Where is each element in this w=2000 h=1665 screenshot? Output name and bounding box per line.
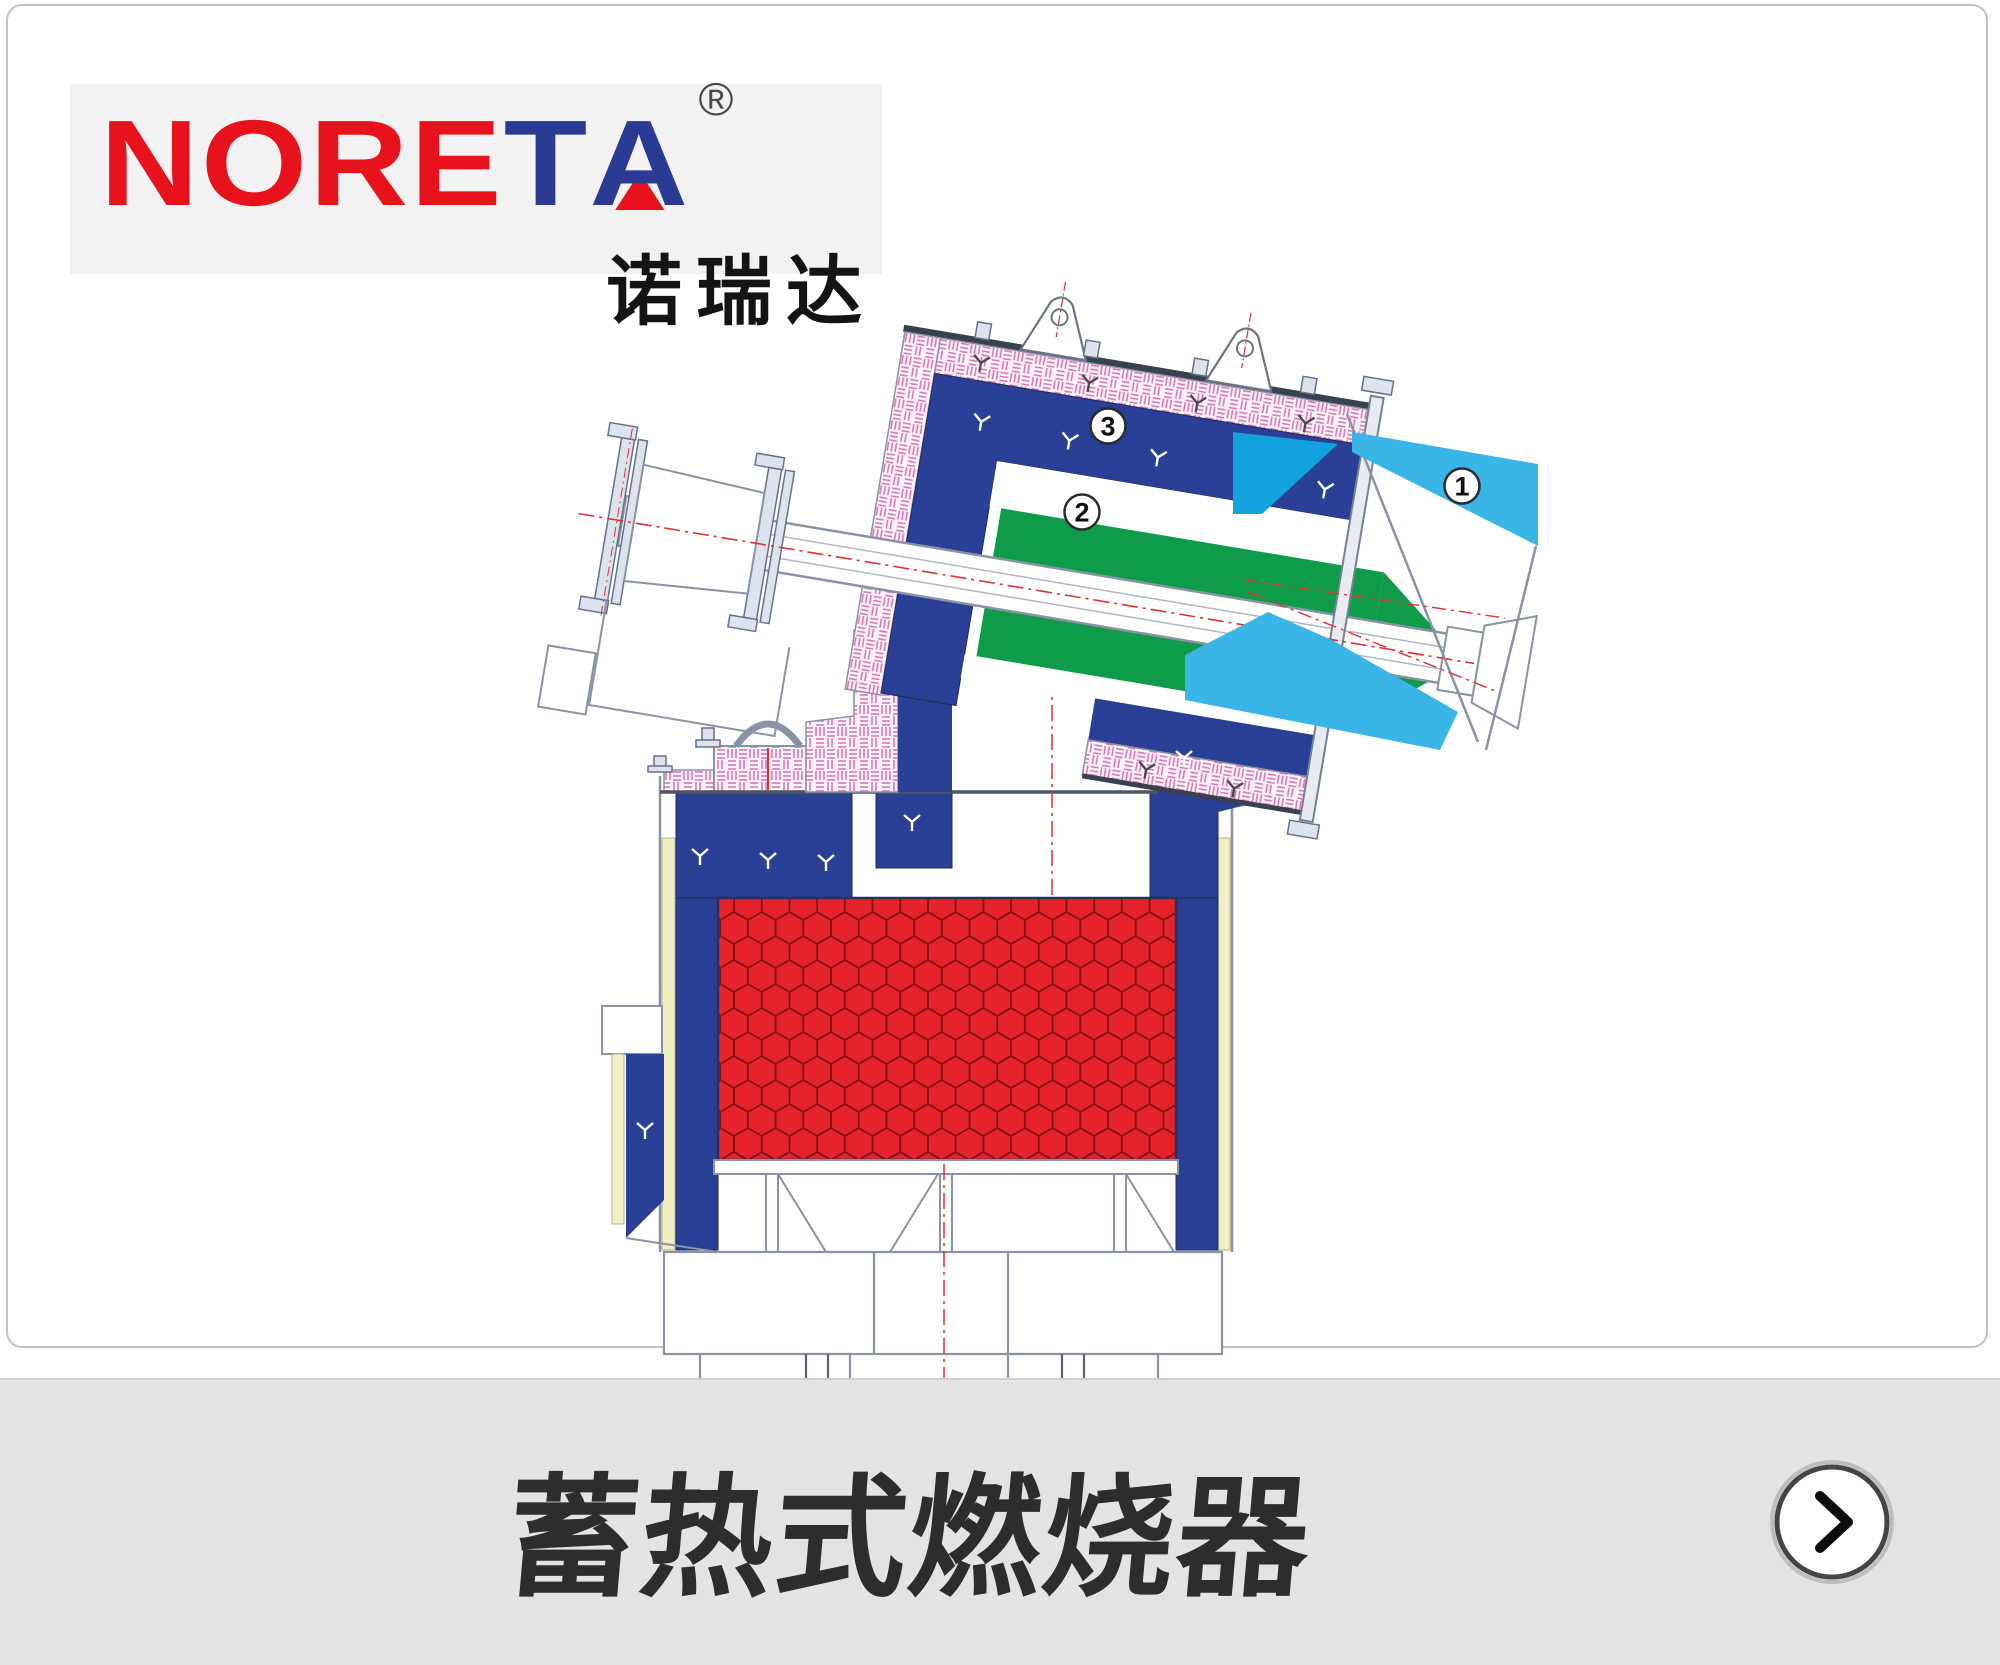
image-card: NORETA® 诺瑞达 (6, 4, 1988, 1348)
brand-chinese-name: 诺瑞达 (606, 230, 876, 340)
wordmark-letter-t: T (504, 95, 590, 231)
wordmark-letter-a: A (589, 102, 690, 224)
product-slide: NORETA® 诺瑞达 (0, 0, 2000, 1665)
wordmark-red-letters: NORE (100, 95, 504, 231)
product-title: 蓄热式燃烧器 (0, 1432, 1828, 1623)
registered-trademark-icon: ® (699, 76, 734, 122)
brand-wordmark: NORETA® (100, 102, 690, 224)
chevron-right-icon (1768, 1458, 1896, 1586)
next-slide-button[interactable] (1768, 1458, 1896, 1586)
caption-bar: 蓄热式燃烧器 (0, 1378, 2000, 1665)
